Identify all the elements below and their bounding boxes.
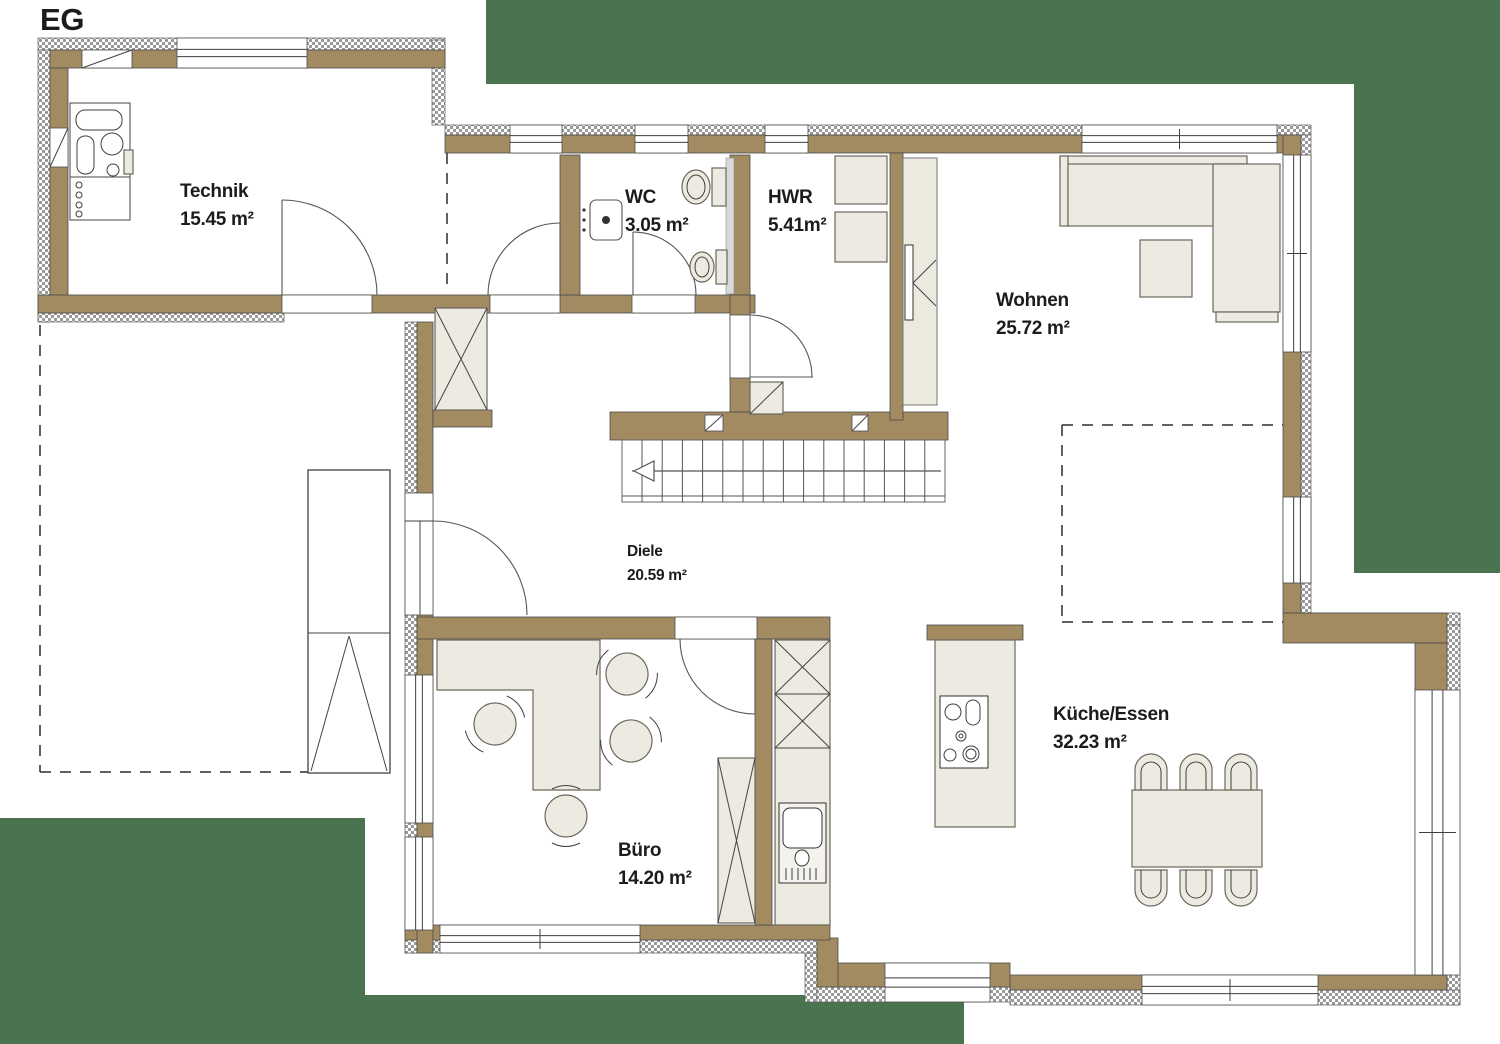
- window: [1142, 975, 1318, 1005]
- cooktop: [940, 696, 988, 768]
- window: [1082, 125, 1277, 153]
- window: [405, 675, 433, 823]
- hwr-appliance-1: [835, 156, 887, 204]
- window: [177, 38, 307, 68]
- green-area-top: [486, 0, 1500, 84]
- wardrobe-closet: [435, 308, 487, 410]
- window: [1415, 690, 1460, 975]
- window: [1283, 155, 1311, 352]
- window: [440, 925, 640, 953]
- tv-wall: [903, 158, 937, 405]
- wall-niche-left: [705, 415, 723, 431]
- wc-toilet-bottom: [690, 250, 727, 284]
- window: [510, 125, 562, 153]
- window: [765, 125, 808, 153]
- floor-title: EG: [40, 2, 84, 37]
- kitchen-island: [935, 640, 1015, 827]
- window: [1283, 497, 1311, 583]
- wc-toilet-top: [682, 168, 726, 206]
- heating-unit-technik: [70, 103, 133, 220]
- dining-table: [1132, 790, 1262, 867]
- window: [405, 837, 433, 930]
- kitchen-counter: [775, 640, 830, 925]
- wall-niche-right: [852, 415, 868, 431]
- kitchen-sink: [779, 803, 826, 883]
- tall-cabinet: [718, 758, 755, 923]
- floorplan-canvas: Technik15.45 m²WC3.05 m²HWR5.41m²Wohnen2…: [0, 0, 1500, 1044]
- green-area-right: [1354, 0, 1500, 573]
- dining-set: [1132, 754, 1262, 906]
- chimney-shaft: [750, 382, 783, 414]
- window: [635, 125, 688, 153]
- tv-icon: [905, 245, 913, 320]
- hwr-appliance-2: [835, 212, 887, 262]
- coffee-table: [1140, 240, 1192, 297]
- window: [885, 963, 990, 1002]
- staircase: [622, 440, 945, 502]
- green-area-bottom-left: [0, 818, 365, 1044]
